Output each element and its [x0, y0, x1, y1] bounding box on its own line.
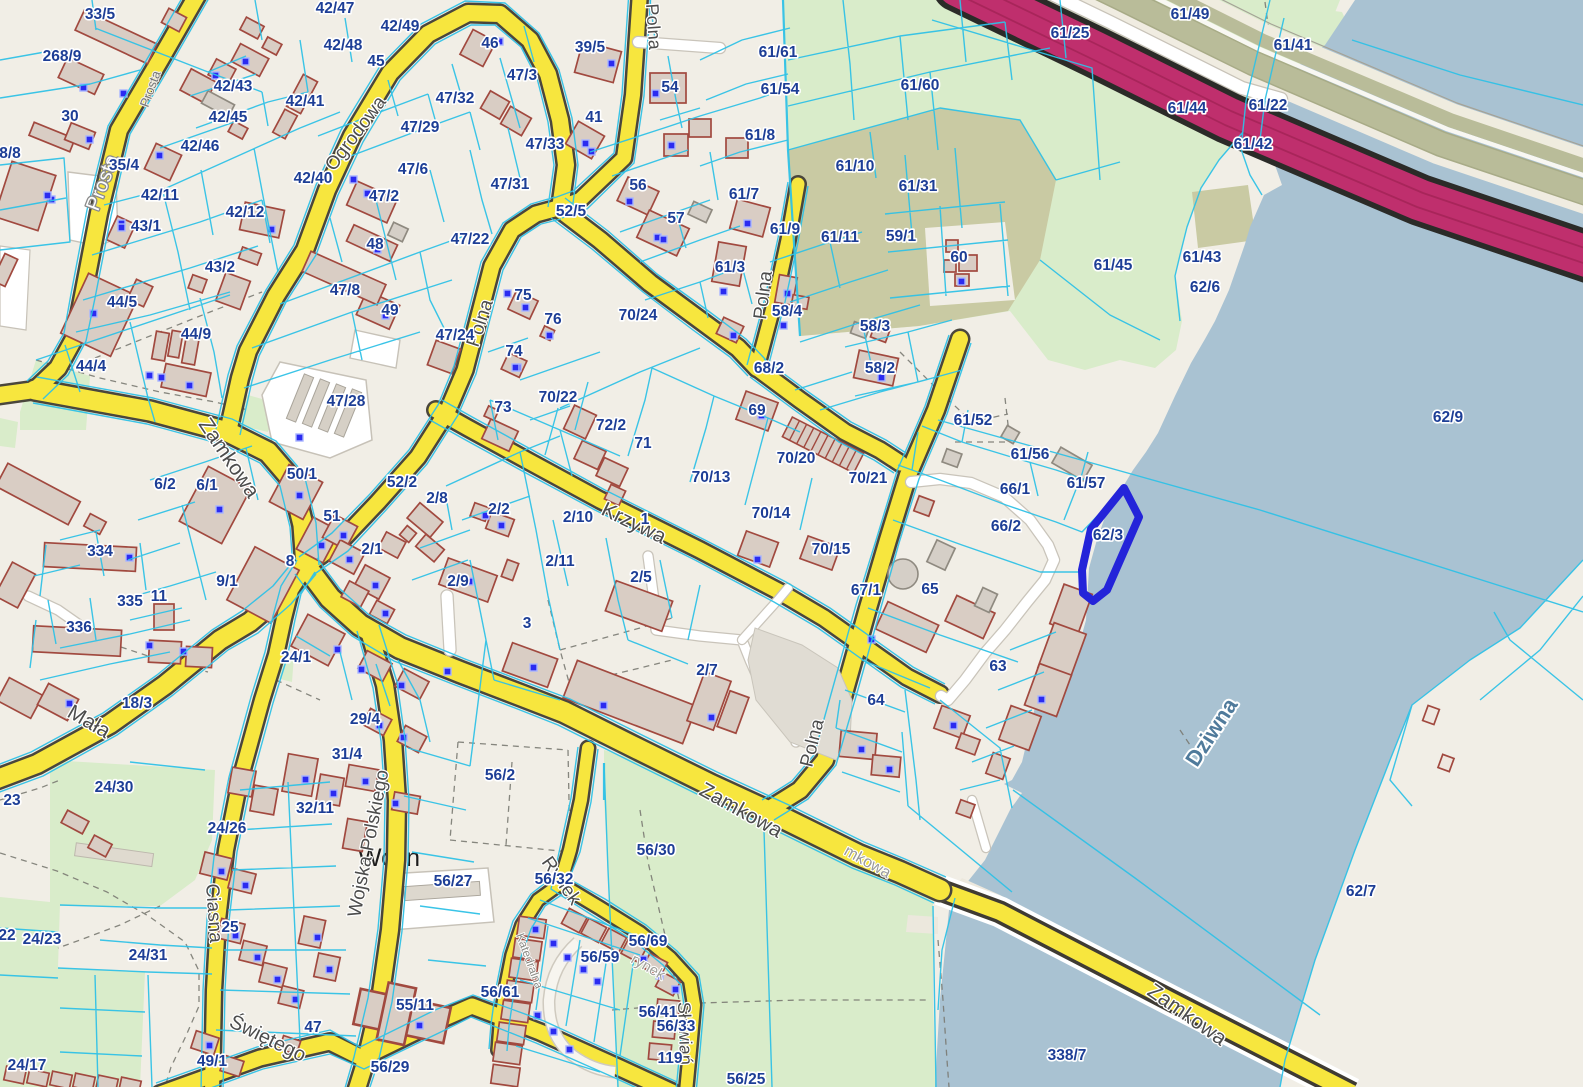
svg-text:60: 60 [950, 249, 967, 266]
svg-text:25: 25 [221, 919, 239, 936]
svg-text:2/11: 2/11 [545, 553, 575, 570]
svg-text:69: 69 [748, 402, 766, 419]
svg-text:11: 11 [151, 588, 168, 605]
svg-text:61/10: 61/10 [836, 158, 875, 175]
svg-text:56/30: 56/30 [637, 842, 676, 859]
svg-text:74: 74 [505, 343, 523, 360]
svg-text:2/9: 2/9 [447, 573, 469, 590]
svg-text:58/4: 58/4 [772, 303, 803, 320]
svg-text:42/46: 42/46 [181, 138, 220, 155]
svg-text:58/3: 58/3 [860, 318, 891, 335]
svg-text:71: 71 [634, 435, 652, 452]
svg-text:45: 45 [367, 53, 385, 70]
svg-text:338/7: 338/7 [1048, 1047, 1087, 1064]
svg-text:6/2: 6/2 [154, 476, 176, 493]
svg-text:47/24: 47/24 [436, 327, 475, 344]
svg-text:61/8: 61/8 [745, 127, 776, 144]
svg-text:52/5: 52/5 [556, 203, 587, 220]
svg-text:49/1: 49/1 [197, 1053, 228, 1070]
svg-text:61/49: 61/49 [1171, 6, 1210, 23]
svg-text:61/43: 61/43 [1183, 249, 1222, 266]
svg-text:61/44: 61/44 [1168, 100, 1207, 117]
svg-text:47/33: 47/33 [526, 136, 565, 153]
svg-text:24/17: 24/17 [8, 1057, 47, 1074]
svg-text:24/23: 24/23 [23, 931, 62, 948]
svg-text:42/48: 42/48 [324, 37, 363, 54]
svg-text:42/45: 42/45 [209, 109, 248, 126]
svg-text:47/8: 47/8 [330, 282, 361, 299]
svg-text:52/2: 52/2 [387, 474, 417, 491]
svg-text:8: 8 [286, 553, 295, 570]
svg-text:61/45: 61/45 [1094, 257, 1133, 274]
svg-text:42/47: 42/47 [316, 0, 355, 17]
svg-text:47/6: 47/6 [398, 161, 429, 178]
svg-text:56/25: 56/25 [727, 1071, 766, 1087]
svg-text:44/4: 44/4 [76, 358, 107, 375]
svg-text:2/10: 2/10 [563, 509, 593, 526]
svg-text:33/5: 33/5 [85, 6, 116, 23]
svg-text:61/31: 61/31 [899, 178, 938, 195]
svg-text:56/69: 56/69 [629, 933, 668, 950]
svg-text:61/57: 61/57 [1067, 475, 1106, 492]
svg-text:56/29: 56/29 [371, 1059, 410, 1076]
svg-text:44/9: 44/9 [181, 326, 212, 343]
svg-text:61/60: 61/60 [901, 77, 940, 94]
svg-text:61/25: 61/25 [1051, 25, 1090, 42]
svg-text:50/1: 50/1 [287, 466, 318, 483]
svg-text:334: 334 [87, 543, 113, 560]
svg-text:73: 73 [494, 399, 512, 416]
svg-text:70/24: 70/24 [619, 307, 658, 324]
svg-text:42/11: 42/11 [141, 187, 179, 204]
svg-text:61/41: 61/41 [1274, 37, 1313, 54]
svg-text:70/20: 70/20 [777, 450, 816, 467]
svg-text:29/4: 29/4 [350, 711, 381, 728]
svg-text:335: 335 [117, 593, 143, 610]
svg-text:47/2: 47/2 [369, 188, 399, 205]
svg-text:62/3: 62/3 [1093, 527, 1124, 544]
svg-text:24/30: 24/30 [95, 779, 134, 796]
svg-text:59/1: 59/1 [886, 228, 917, 245]
svg-text:56/61: 56/61 [481, 984, 520, 1001]
svg-text:268/9: 268/9 [43, 48, 82, 65]
svg-text:42/12: 42/12 [226, 204, 265, 221]
svg-text:48: 48 [366, 236, 384, 253]
svg-text:70/22: 70/22 [539, 389, 578, 406]
svg-text:43/2: 43/2 [205, 259, 235, 276]
svg-text:2/1: 2/1 [361, 541, 383, 558]
svg-text:47/3: 47/3 [507, 67, 538, 84]
svg-text:336: 336 [66, 619, 92, 636]
svg-text:58/2: 58/2 [865, 360, 895, 377]
svg-text:18/3: 18/3 [122, 695, 153, 712]
svg-text:2/7: 2/7 [696, 662, 718, 679]
svg-text:24/31: 24/31 [129, 947, 168, 964]
svg-text:56/2: 56/2 [485, 767, 515, 784]
svg-text:6/1: 6/1 [196, 477, 218, 494]
svg-text:8/8: 8/8 [0, 145, 21, 162]
svg-text:61/56: 61/56 [1011, 446, 1050, 463]
svg-text:47/32: 47/32 [436, 90, 475, 107]
svg-text:70/14: 70/14 [752, 505, 791, 522]
svg-text:61/22: 61/22 [1249, 97, 1288, 114]
svg-text:42/49: 42/49 [381, 18, 420, 35]
svg-text:61/61: 61/61 [759, 44, 798, 61]
svg-text:61/7: 61/7 [729, 186, 759, 203]
svg-text:61/42: 61/42 [1234, 136, 1273, 153]
svg-text:47/28: 47/28 [327, 393, 366, 410]
svg-text:51: 51 [323, 508, 341, 525]
svg-text:61/3: 61/3 [715, 259, 746, 276]
svg-text:24/1: 24/1 [281, 649, 312, 666]
svg-text:9/1: 9/1 [216, 573, 238, 590]
svg-text:1: 1 [641, 511, 650, 528]
svg-text:3: 3 [523, 615, 532, 632]
svg-text:30: 30 [61, 108, 78, 125]
svg-text:46: 46 [481, 35, 499, 52]
svg-text:62/6: 62/6 [1190, 279, 1221, 296]
svg-text:66/1: 66/1 [1000, 481, 1031, 498]
svg-text:42/40: 42/40 [294, 170, 333, 187]
svg-text:72/2: 72/2 [596, 417, 626, 434]
svg-text:70/21: 70/21 [849, 470, 888, 487]
svg-text:Polna: Polna [642, 3, 665, 51]
svg-text:57: 57 [667, 210, 684, 227]
svg-text:61/52: 61/52 [954, 412, 993, 429]
svg-text:56/27: 56/27 [434, 873, 473, 890]
svg-text:62/9: 62/9 [1433, 409, 1464, 426]
svg-text:66/2: 66/2 [991, 518, 1021, 535]
svg-text:35/4: 35/4 [109, 157, 140, 174]
svg-text:54: 54 [661, 79, 679, 96]
svg-text:2/5: 2/5 [630, 569, 652, 586]
svg-text:56/59: 56/59 [581, 949, 620, 966]
svg-text:44/5: 44/5 [107, 294, 138, 311]
svg-text:39/5: 39/5 [575, 39, 606, 56]
svg-text:70/13: 70/13 [692, 469, 731, 486]
svg-text:31/4: 31/4 [332, 746, 363, 763]
svg-text:61/9: 61/9 [770, 221, 801, 238]
svg-text:61/11: 61/11 [821, 229, 859, 246]
svg-text:61/54: 61/54 [761, 81, 800, 98]
svg-text:70/15: 70/15 [812, 541, 851, 558]
svg-text:43/1: 43/1 [131, 218, 162, 235]
svg-text:55/11: 55/11 [396, 997, 434, 1014]
svg-text:47/31: 47/31 [491, 176, 530, 193]
svg-text:49: 49 [381, 302, 399, 319]
svg-text:42/43: 42/43 [214, 78, 253, 95]
svg-text:47: 47 [304, 1019, 321, 1036]
svg-text:56: 56 [629, 177, 647, 194]
svg-text:67/1: 67/1 [851, 582, 882, 599]
svg-text:47/29: 47/29 [401, 119, 440, 136]
svg-text:23: 23 [3, 792, 21, 809]
svg-text:47/22: 47/22 [451, 231, 490, 248]
svg-text:62/7: 62/7 [1346, 883, 1376, 900]
svg-text:2/8: 2/8 [426, 490, 448, 507]
svg-text:68/2: 68/2 [754, 360, 784, 377]
svg-text:56/33: 56/33 [657, 1018, 696, 1035]
svg-text:42/41: 42/41 [286, 93, 325, 110]
svg-text:76: 76 [544, 311, 562, 328]
svg-text:75: 75 [514, 287, 532, 304]
svg-text:32/11: 32/11 [296, 800, 334, 817]
svg-text:63: 63 [989, 658, 1007, 675]
svg-text:41: 41 [585, 109, 603, 126]
svg-text:24/26: 24/26 [208, 820, 247, 837]
svg-text:64: 64 [867, 692, 885, 709]
svg-text:56/32: 56/32 [535, 871, 574, 888]
svg-text:22: 22 [0, 927, 16, 944]
svg-text:65: 65 [921, 581, 939, 598]
svg-text:2/2: 2/2 [488, 501, 510, 518]
svg-text:119: 119 [657, 1050, 682, 1067]
